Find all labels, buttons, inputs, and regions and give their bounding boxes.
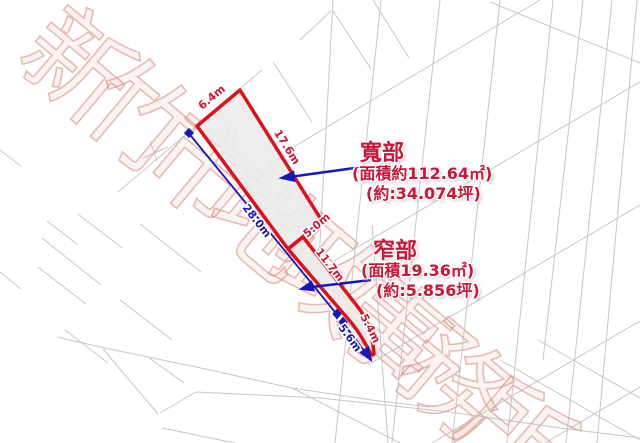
arrowhead-narrow-callout — [301, 282, 314, 291]
parcel-drawing: 6.4m 17.6m 5.0m 28.0m 11.7m 5.4m 5.6m — [0, 0, 640, 443]
narrow-part-tsubo: (約:5.856坪) — [376, 277, 480, 301]
parcel-outline — [197, 90, 374, 355]
wide-part-tsubo: (約:34.074坪) — [366, 180, 481, 204]
cadastral-map-canvas: 新竹市地政事務所 — [0, 0, 640, 443]
